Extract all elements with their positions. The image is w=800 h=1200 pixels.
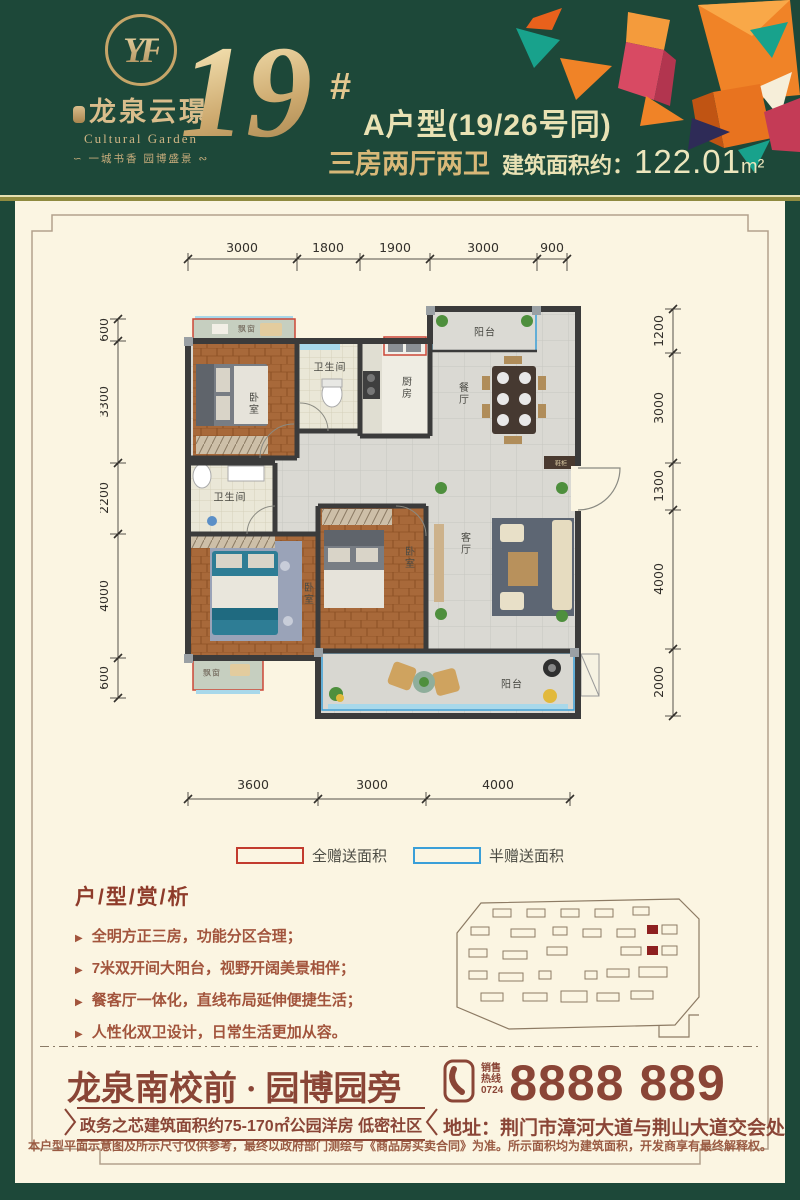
analysis-title: 户/型/赏/析 — [75, 881, 435, 911]
legend-half-gift: 半赠送面积 — [413, 845, 564, 866]
dim-top-1: 3000 — [226, 240, 258, 255]
phone-icon — [443, 1059, 475, 1103]
hotline-block: 销售 热线 0724 8888 889 — [443, 1059, 726, 1107]
dim-right-3: 1300 — [651, 470, 666, 502]
hotline-line2: 热线 — [481, 1074, 503, 1085]
layout-spec: 三房两厅两卫 — [328, 142, 490, 181]
dashdot-divider — [40, 1046, 760, 1047]
legend-half-gift-label: 半赠送面积 — [489, 845, 564, 866]
floorplan-drawing: 3000 1800 1900 3000 900 3600 3000 4000 6… — [100, 236, 700, 816]
dim-bottom-1: 3600 — [237, 777, 269, 792]
dim-right-4: 4000 — [651, 563, 666, 595]
dim-bottom-2: 3000 — [356, 777, 388, 792]
area-value: 122.01 — [634, 143, 741, 181]
dim-top-5: 900 — [540, 240, 564, 255]
area-label: 建筑面积约： — [502, 148, 634, 180]
legend-half-gift-swatch — [413, 847, 481, 864]
building-number: 19 — [180, 18, 312, 166]
dim-top-2: 1800 — [312, 240, 344, 255]
dim-left-4: 4000 — [100, 580, 111, 612]
poster-page: YF 龙泉云璟 Cultural Garden ∽ 一城书香 园博盛景 ∾ 19… — [0, 0, 800, 1200]
room-label-bath1: 卫生间 — [314, 359, 347, 374]
analysis-bullet: ▶7米双开间大阳台，视野开阔美景相伴； — [75, 957, 435, 978]
dim-left-2: 3300 — [100, 386, 111, 418]
site-plan — [435, 889, 780, 1046]
legend-full-gift-swatch — [236, 847, 304, 864]
dim-left-3: 2200 — [100, 482, 111, 514]
bullet-triangle-icon: ▶ — [75, 933, 83, 944]
dim-bottom-3: 4000 — [482, 777, 514, 792]
area-unit: m² — [741, 156, 764, 179]
brand-seal-icon — [73, 106, 85, 123]
site-plan-map — [435, 889, 780, 1041]
legend-full-gift: 全赠送面积 — [236, 845, 387, 866]
room-label-living: 客厅 — [457, 532, 472, 556]
ribbon-right-chevron-icon — [425, 1107, 439, 1137]
room-label-balcony-bottom: 阳台 — [501, 676, 523, 691]
bullet-triangle-icon: ▶ — [75, 1029, 83, 1040]
address-line: 地址：荆门市漳河大道与荆山大道交会处 — [443, 1113, 785, 1140]
analysis-list: ▶全明方正三房，功能分区合理； ▶7米双开间大阳台，视野开阔美景相伴； ▶餐客厅… — [75, 925, 435, 1042]
disclaimer-text: 本户型平面示意图及所示尺寸仅供参考，最终以政府部门测绘与《商品房买卖合同》为准。… — [15, 1137, 785, 1154]
room-label-shoe-cabinet: 鞋柜 — [555, 459, 567, 468]
unit-analysis: 户/型/赏/析 ▶全明方正三房，功能分区合理； ▶7米双开间大阳台，视野开阔美景… — [75, 881, 435, 1053]
hotline-number: 8888 889 — [509, 1059, 726, 1107]
analysis-bullet: ▶人性化双卫设计，日常生活更加从容。 — [75, 1021, 435, 1042]
dim-top-4: 3000 — [467, 240, 499, 255]
location-slogan: 龙泉南校前 · 园博园旁 — [67, 1061, 401, 1110]
dim-top-3: 1900 — [379, 240, 411, 255]
unit-title: A户型(19/26号同) — [363, 100, 612, 144]
hotline-label: 销售 热线 0724 — [481, 1063, 503, 1096]
room-label-bay2: 飘窗 — [203, 668, 221, 679]
analysis-bullet: ▶全明方正三房，功能分区合理； — [75, 925, 435, 946]
legend: 全赠送面积 半赠送面积 — [15, 845, 785, 866]
bullet-triangle-icon: ▶ — [75, 997, 83, 1008]
room-label-dining: 餐厅 — [455, 382, 470, 406]
dim-left-1: 600 — [100, 318, 111, 342]
dim-right-5: 2000 — [651, 666, 666, 698]
ribbon-left-chevron-icon — [63, 1107, 77, 1137]
room-label-bedroom2: 卧室 — [300, 582, 315, 606]
dim-right-1: 1200 — [651, 315, 666, 347]
room-label-bedroom3: 卧室 — [401, 546, 416, 570]
logo-monogram: YF — [123, 29, 159, 71]
floorplan: 3000 1800 1900 3000 900 3600 3000 4000 6… — [100, 236, 700, 816]
dim-left-5: 600 — [100, 666, 111, 690]
site-highlight-building-26 — [647, 946, 658, 955]
hotline-line1: 销售 — [481, 1063, 503, 1074]
content-area: 3000 1800 1900 3000 900 3600 3000 4000 6… — [15, 201, 785, 1183]
dim-right-2: 3000 — [651, 392, 666, 424]
hotline-code: 0724 — [481, 1085, 503, 1096]
header: YF 龙泉云璟 Cultural Garden ∽ 一城书香 园博盛景 ∾ 19… — [0, 0, 800, 197]
room-label-bedroom1: 卧室 — [245, 392, 260, 416]
bullet-triangle-icon: ▶ — [75, 965, 83, 976]
room-label-bath2: 卫生间 — [214, 489, 247, 504]
room-label-bay1: 飘窗 — [238, 324, 256, 335]
analysis-bullet: ▶餐客厅一体化，直线布局延伸便捷生活； — [75, 989, 435, 1010]
ribbon-text: 政务之芯建筑面积约75-170㎡公园洋房 低密社区 — [77, 1107, 425, 1141]
legend-full-gift-label: 全赠送面积 — [312, 845, 387, 866]
site-highlight-building-19 — [647, 925, 658, 934]
room-label-kitchen: 厨房 — [398, 376, 413, 400]
spec-line: 三房两厅两卫 建筑面积约： 122.01 m² — [328, 142, 764, 181]
ribbon-banner: 政务之芯建筑面积约75-170㎡公园洋房 低密社区 — [63, 1107, 439, 1141]
room-label-balcony-top: 阳台 — [474, 324, 496, 339]
logo-monogram-ring: YF — [105, 14, 177, 86]
building-number-hash: # — [330, 66, 351, 109]
